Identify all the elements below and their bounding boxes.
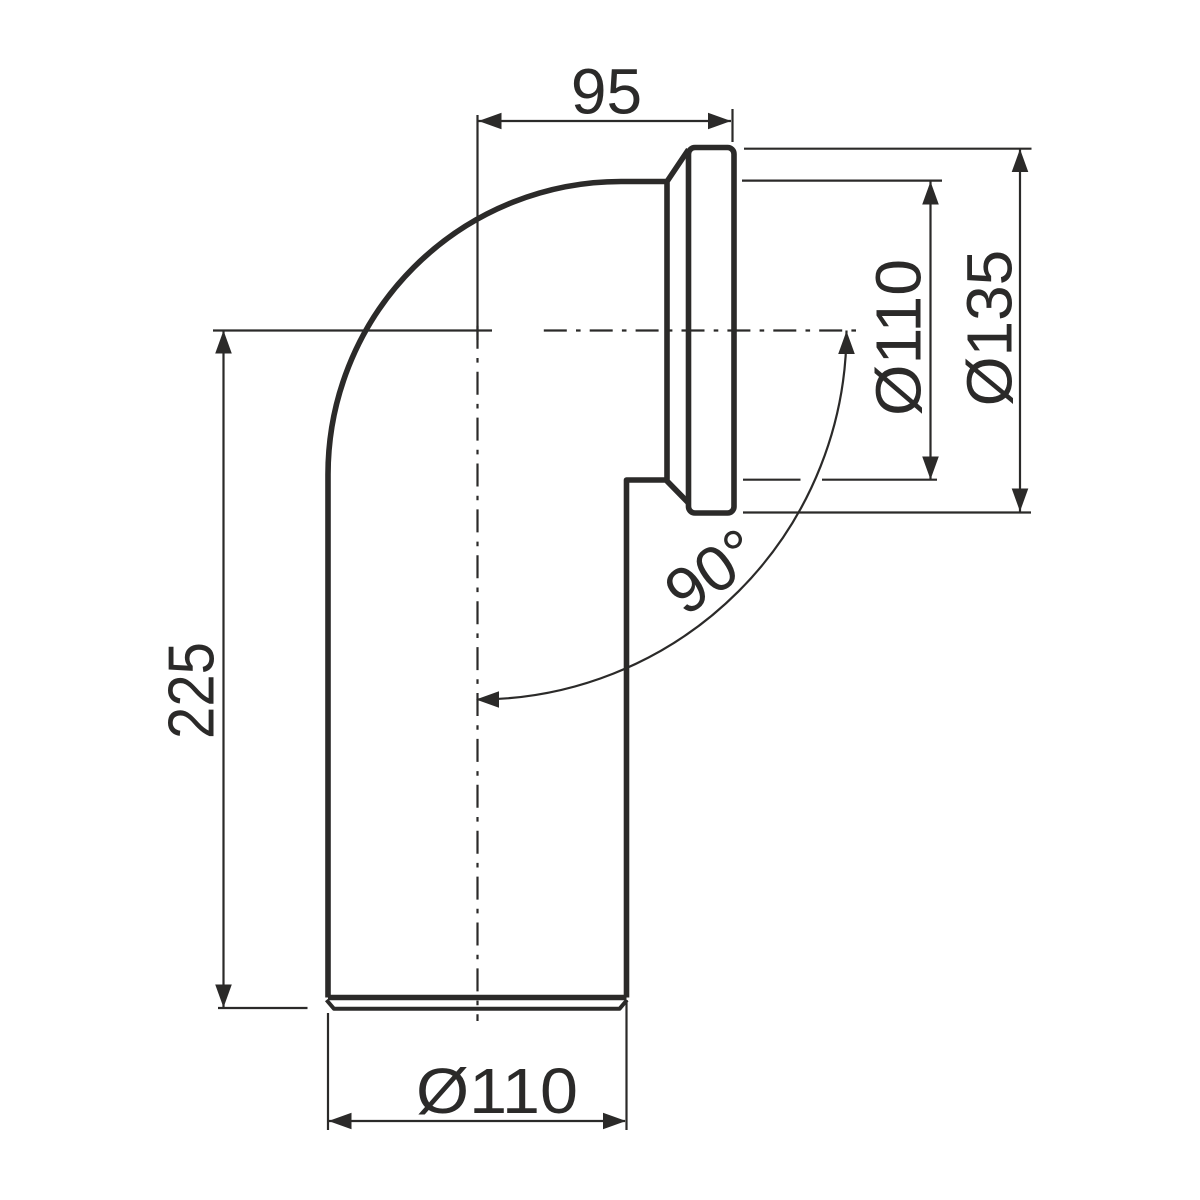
svg-text:Ø135: Ø135 — [954, 250, 1026, 407]
svg-text:95: 95 — [571, 56, 642, 128]
svg-text:Ø110: Ø110 — [863, 259, 935, 416]
svg-text:Ø110: Ø110 — [416, 1055, 578, 1127]
svg-text:225: 225 — [155, 642, 228, 739]
